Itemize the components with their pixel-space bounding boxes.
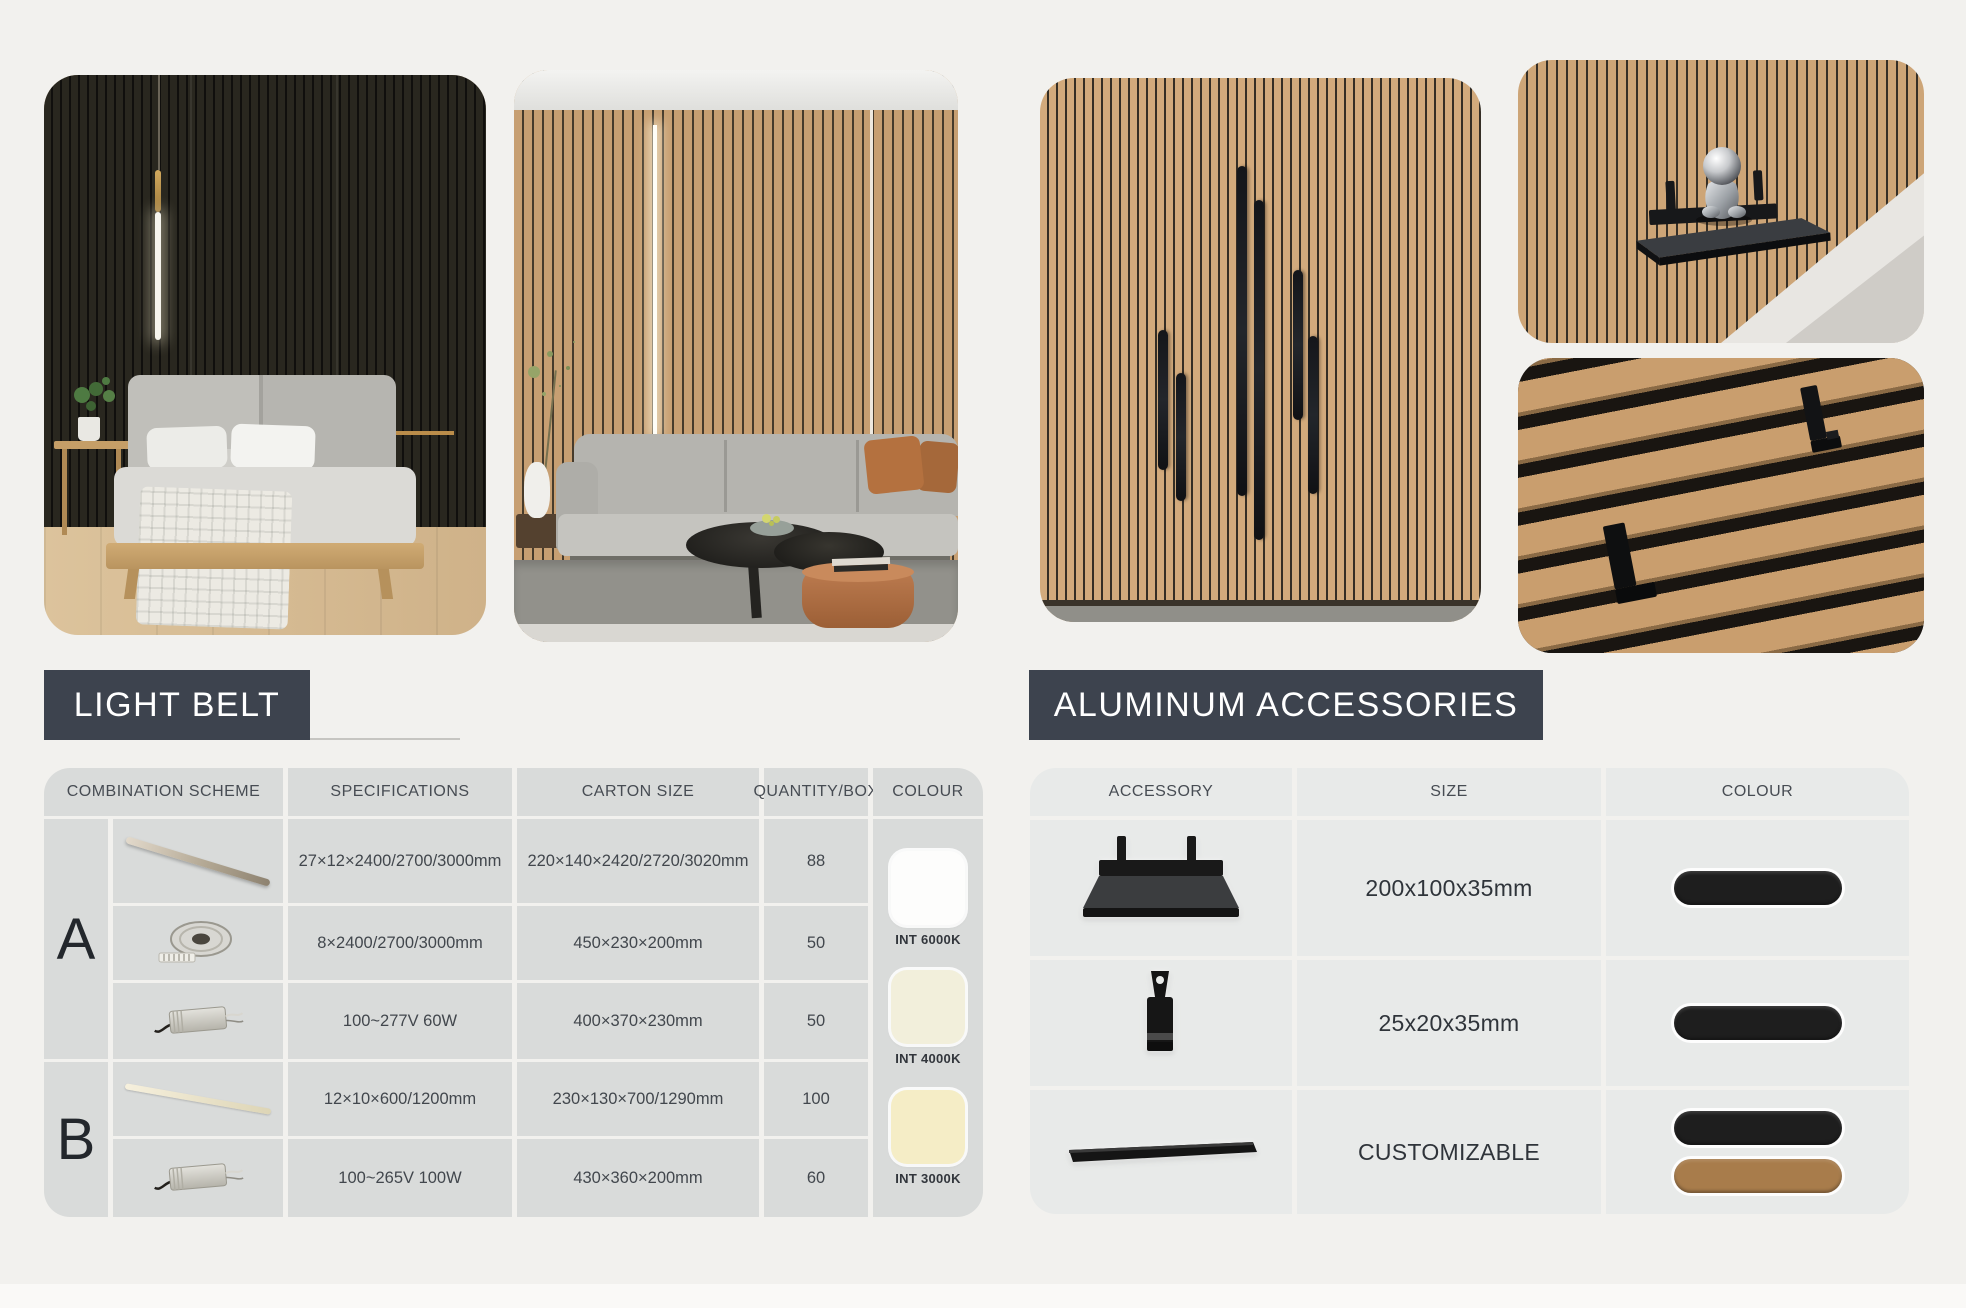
colour-label: INT 4000K	[895, 1051, 961, 1066]
section-title-light-belt: LIGHT BELT	[44, 670, 310, 740]
floor	[1040, 606, 1481, 622]
header-size: SIZE	[1297, 768, 1601, 816]
fruit	[762, 514, 771, 523]
trim-bar-icon	[1061, 1130, 1261, 1174]
quantity-cell: 50	[764, 983, 868, 1059]
shelf-and-figurine-art	[1518, 60, 1924, 343]
header-combination-scheme: COMBINATION SCHEME	[44, 768, 283, 816]
group-a-label: A	[44, 819, 108, 1059]
item-image-mini-light-bar	[113, 1062, 283, 1136]
black-light-bar	[1308, 336, 1318, 494]
bed-pillow	[146, 426, 227, 471]
colour-label: INT 3000K	[895, 1171, 961, 1186]
wall-shelf-icon	[1071, 828, 1251, 948]
plant-leaves	[74, 387, 90, 403]
colour-option: INT 3000K	[891, 1090, 965, 1186]
pendant-wire	[158, 75, 160, 170]
colour-pill-stack	[1674, 1111, 1842, 1193]
colour-option: INT 6000K	[891, 851, 965, 947]
size-cell: 200x100x35mm	[1297, 820, 1601, 956]
black-light-bar	[1254, 200, 1264, 540]
photo-living-room-slat-wall	[514, 70, 958, 642]
led-strip-reel-icon	[155, 913, 241, 973]
colour-cell	[1606, 960, 1909, 1086]
colour-option: INT 4000K	[891, 970, 965, 1066]
panel-seam	[870, 110, 873, 434]
carton-cell: 450×230×200mm	[517, 906, 759, 980]
light-belt-table: COMBINATION SCHEME SPECIFICATIONS CARTON…	[44, 768, 983, 1217]
colour-options-cell: INT 6000K INT 4000K INT 3000K	[873, 819, 983, 1217]
spec-cell: 100~277V 60W	[288, 983, 512, 1059]
colour-pill-black	[1674, 871, 1842, 905]
item-image-pendant-light-tube	[113, 819, 283, 903]
carton-cell: 230×130×700/1290mm	[517, 1062, 759, 1136]
spec-cell: 12×10×600/1200mm	[288, 1062, 512, 1136]
bed-leg	[378, 569, 393, 599]
quantity-cell: 60	[764, 1139, 868, 1217]
colour-pill-black	[1674, 1006, 1842, 1040]
spec-cell: 27×12×2400/2700/3000mm	[288, 819, 512, 903]
aluminum-accessories-table: ACCESSORY SIZE COLOUR 200x100x35mm	[1030, 768, 1909, 1214]
white-vase	[524, 462, 550, 518]
quantity-cell: 88	[764, 819, 868, 903]
size-cell: 25x20x35mm	[1297, 960, 1601, 1086]
spec-cell: 100~265V 100W	[288, 1139, 512, 1217]
slat-hook-icon	[1129, 967, 1193, 1079]
photo-slat-panel-light-bars	[1040, 78, 1481, 622]
group-b-label: B	[44, 1062, 108, 1217]
colour-cell	[1606, 1090, 1909, 1214]
fruit-bowl	[750, 520, 794, 536]
colour-cell	[1606, 820, 1909, 956]
gold-rail	[396, 431, 454, 435]
item-image-led-driver-100w	[113, 1139, 283, 1217]
colour-pill-bronze	[1674, 1159, 1842, 1193]
photo-shelf-accessory-closeup	[1518, 60, 1924, 343]
colour-pill-black	[1674, 1111, 1842, 1145]
vertical-light-strip	[653, 125, 657, 435]
light-bar-icon	[125, 1083, 272, 1115]
bed-wood-base	[106, 543, 424, 569]
led-driver-icon	[148, 1150, 248, 1206]
accessory-image-wall-shelf	[1030, 820, 1292, 956]
ceiling	[514, 70, 958, 110]
black-light-bar	[1158, 330, 1168, 470]
photo-diagonal-slats-hooks	[1518, 358, 1924, 653]
side-table-leg	[62, 449, 67, 535]
plant-pot	[78, 417, 100, 441]
header-accessory: ACCESSORY	[1030, 768, 1292, 816]
item-image-led-driver-60w	[113, 983, 283, 1059]
section-title-text: LIGHT BELT	[74, 686, 280, 725]
accessory-image-trim-bar	[1030, 1090, 1292, 1214]
plant-leaves	[528, 366, 540, 378]
accessory-image-slat-hook	[1030, 960, 1292, 1086]
pendant-gold-rod	[155, 170, 161, 212]
product-catalog-page: LIGHT BELT ALUMINUM ACCESSORIES COMBINAT…	[0, 0, 1966, 1308]
orange-pillow	[863, 435, 924, 495]
hooks-art	[1518, 358, 1924, 653]
colour-swatch-3000k	[891, 1090, 965, 1164]
spec-cell: 8×2400/2700/3000mm	[288, 906, 512, 980]
pendant-light-tube	[155, 212, 161, 340]
photo-bedroom-dark-slat-wall	[44, 75, 486, 635]
sofa-cushion-divider	[856, 440, 859, 512]
header-colour: COLOUR	[873, 768, 983, 816]
black-light-bar	[1237, 166, 1247, 496]
section-title-aluminum-accessories: ALUMINUM ACCESSORIES	[1029, 670, 1543, 740]
colour-swatch-4000k	[891, 970, 965, 1044]
black-light-bar	[1176, 373, 1186, 501]
bed-pillow	[230, 424, 315, 471]
carton-cell: 430×360×200mm	[517, 1139, 759, 1217]
colour-swatch-6000k	[891, 851, 965, 925]
carton-cell: 400×370×230mm	[517, 983, 759, 1059]
size-cell: CUSTOMIZABLE	[1297, 1090, 1601, 1214]
quantity-cell: 50	[764, 906, 868, 980]
light-tube-icon	[125, 836, 270, 887]
divider-line	[310, 738, 460, 740]
black-light-bar	[1293, 270, 1303, 420]
section-title-text: ALUMINUM ACCESSORIES	[1054, 686, 1519, 725]
page-bottom-band	[0, 1284, 1966, 1308]
header-specifications: SPECIFICATIONS	[288, 768, 512, 816]
colour-label: INT 6000K	[895, 932, 961, 947]
quantity-cell: 100	[764, 1062, 868, 1136]
header-quantity-box: QUANTITY/BOX	[764, 768, 868, 816]
item-image-led-strip-reel	[113, 906, 283, 980]
led-driver-icon	[148, 993, 248, 1049]
header-carton-size: CARTON SIZE	[517, 768, 759, 816]
side-table-top	[54, 441, 130, 449]
header-colour: COLOUR	[1606, 768, 1909, 816]
carton-cell: 220×140×2420/2720/3020mm	[517, 819, 759, 903]
sofa-cushion-divider	[724, 440, 727, 512]
